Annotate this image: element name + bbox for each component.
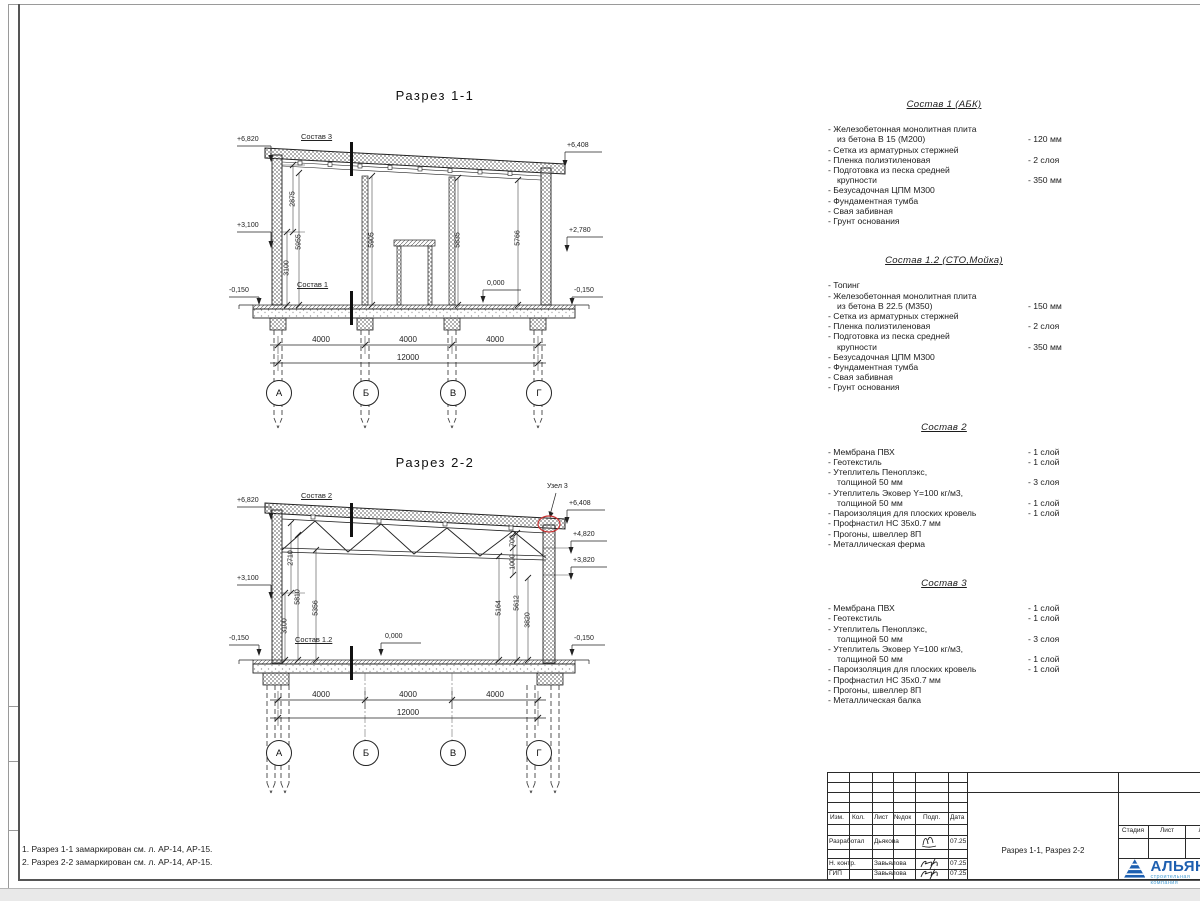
spec-item: - Профнастил НС 35х0.7 мм <box>828 675 1090 685</box>
spec-item: - Металлическая балка <box>828 695 1090 705</box>
section-view-2-2: Разрез 2-2 <box>225 445 645 805</box>
spec-item: - Грунт основания <box>828 382 1090 392</box>
desk-background <box>0 888 1200 901</box>
tb-col-podp: Подп. <box>923 814 940 821</box>
vertical-dim: 5810 <box>295 589 302 605</box>
elevation-label: +4,820 <box>573 531 595 538</box>
elevation-label: +2,780 <box>569 227 591 234</box>
spec-block-sostav-3: Состав 3 - Мембрана ПВХ - 1 слой - Геоте… <box>828 579 1090 705</box>
spec-item: - Железобетонная монолитная плитаиз бето… <box>828 291 1090 311</box>
drawing-sheet: { "s11": { "title": "Разрез 1-1", "cut_l… <box>0 0 1200 900</box>
tb-date: 07.25 <box>950 860 966 867</box>
span-dim: 4000 <box>312 690 330 699</box>
tb-col-ndok: №док <box>894 814 911 821</box>
vertical-dim: 3820 <box>525 612 532 628</box>
tb-col-list: Лист <box>874 814 888 821</box>
margin-tick-1 <box>8 706 18 707</box>
spec-title: Состав 3 <box>828 579 1060 589</box>
vertical-dim: 3100 <box>284 260 291 276</box>
spec-block-sostav-2: Состав 2 - Мембрана ПВХ - 1 слой - Геоте… <box>828 423 1090 549</box>
elevation-label: +3,820 <box>573 557 595 564</box>
sheet-notes: 1. Разрез 1-1 замаркирован см. л. АР-14,… <box>22 843 212 869</box>
spec-item: - Утеплитель Пеноплэкс,толщиной 50 мм - … <box>828 624 1090 644</box>
spec-item: - Профнастил НС 35х0.7 мм <box>828 518 1090 528</box>
axis-bubble: Б <box>353 380 379 406</box>
sheet-border-left-outer <box>8 4 9 888</box>
elevation-label: -0,150 <box>574 635 594 642</box>
axis-bubble: Б <box>353 740 379 766</box>
tb-role: ГИП <box>829 870 842 877</box>
composition-cut-label: Состав 1 <box>297 280 328 289</box>
spec-item: - Утеплитель Эковер Y=100 кг/м3,толщиной… <box>828 488 1090 508</box>
axis-bubble: Г <box>526 740 552 766</box>
spec-title: Состав 2 <box>828 423 1060 433</box>
spec-item: - Пароизоляция для плоских кровель - 1 с… <box>828 508 1090 518</box>
spec-item-list: - Железобетонная монолитная плитаиз бето… <box>828 124 1090 226</box>
spec-item: - Мембрана ПВХ - 1 слой <box>828 603 1090 613</box>
vertical-dim: 5905 <box>369 232 376 248</box>
composition-cut-label: Состав 1.2 <box>295 635 332 644</box>
tb-stage-col: Лист <box>1160 827 1174 834</box>
span-dim: 4000 <box>486 690 504 699</box>
tb-doc-title: Разрез 1-1, Разрез 2-2 <box>968 846 1118 855</box>
spec-item: - Сетка из арматурных стержней <box>828 145 1090 155</box>
tb-role: Разработал <box>829 838 864 845</box>
node-callout-label: Узел 3 <box>547 483 568 490</box>
spec-item: - Прогоны, швеллер 8П <box>828 529 1090 539</box>
section-view-1-1: Разрез 1-1 <box>225 80 645 440</box>
vertical-dim: 5835 <box>455 232 462 248</box>
tb-col-kol: Кол. <box>852 814 865 821</box>
spec-item: - Фундаментная тумба <box>828 362 1090 372</box>
span-dim: 4000 <box>486 335 504 344</box>
spec-item: - Пароизоляция для плоских кровель - 1 с… <box>828 664 1090 674</box>
axis-bubble: В <box>440 380 466 406</box>
note-line: 2. Разрез 2-2 замаркирован см. л. АР-14,… <box>22 856 212 869</box>
spec-item: - Свая забивная <box>828 372 1090 382</box>
note-line: 1. Разрез 1-1 замаркирован см. л. АР-14,… <box>22 843 212 856</box>
spec-item: - Утеплитель Эковер Y=100 кг/м3,толщиной… <box>828 644 1090 664</box>
spec-item: - Безусадочная ЦПМ М300 <box>828 352 1090 362</box>
elevation-label: +6,408 <box>569 500 591 507</box>
spec-item: - Железобетонная монолитная плитаиз бето… <box>828 124 1090 144</box>
spec-item: - Грунт основания <box>828 216 1090 226</box>
vertical-dim: 3100 <box>282 618 289 634</box>
tb-stage-col: Стадия <box>1122 827 1144 834</box>
composition-specs: Состав 1 (АБК) - Железобетонная монолитн… <box>828 100 1090 705</box>
sheet-border-top <box>8 4 1200 5</box>
spec-item: - Мембрана ПВХ - 1 слой <box>828 447 1090 457</box>
vertical-dim: 2875 <box>290 191 297 207</box>
spec-item: - Сетка из арматурных стержней <box>828 311 1090 321</box>
elevation-label: +3,100 <box>237 575 259 582</box>
logo-triangle-icon <box>1124 859 1145 878</box>
span-dim: 4000 <box>399 690 417 699</box>
tb-date: 07.25 <box>950 838 966 845</box>
spec-item-list: - Топинг - Железобетонная монолитная пли… <box>828 280 1090 392</box>
spec-block-sostav-1-2: Состав 1.2 (СТО,Мойка) - Топинг - Железо… <box>828 256 1090 392</box>
elevation-label: -0,150 <box>574 287 594 294</box>
elevation-label: +3,100 <box>237 222 259 229</box>
spec-item: - Подготовка из песка среднейкрупности -… <box>828 165 1090 185</box>
title-block: Изм. Кол. Лист №док Подп. Дата Разработа… <box>827 772 1200 880</box>
spec-item: - Утеплитель Пеноплэкс,толщиной 50 мм - … <box>828 467 1090 487</box>
spec-item-list: - Мембрана ПВХ - 1 слой - Геотекстиль - … <box>828 447 1090 549</box>
tb-date: 07.25 <box>950 870 966 877</box>
vertical-dim: 2710 <box>288 550 295 566</box>
composition-cut-label: Состав 3 <box>301 132 332 141</box>
spec-block-sostav-1: Состав 1 (АБК) - Железобетонная монолитн… <box>828 100 1090 226</box>
spec-item: - Свая забивная <box>828 206 1090 216</box>
span-dim: 4000 <box>399 335 417 344</box>
signature-razrabotal <box>919 834 947 848</box>
spec-item-list: - Мембрана ПВХ - 1 слой - Геотекстиль - … <box>828 603 1090 705</box>
tb-role: Н. контр. <box>829 860 856 867</box>
elevation-label: +6,408 <box>567 142 589 149</box>
sheet-border-left-inner <box>18 4 20 881</box>
vertical-dim: 5164 <box>496 600 503 616</box>
composition-cut-label: Состав 2 <box>301 491 332 500</box>
vertical-dim: 5356 <box>313 600 320 616</box>
vertical-dim: 1000 <box>510 554 517 570</box>
axis-bubble: Г <box>526 380 552 406</box>
spec-item: - Прогоны, швеллер 8П <box>828 685 1090 695</box>
tb-col-izm: Изм. <box>830 814 844 821</box>
signature-gip <box>919 868 947 880</box>
total-dim: 12000 <box>397 353 419 362</box>
logo-tagline: строительная компания <box>1150 874 1200 886</box>
vertical-dim: 5612 <box>514 595 521 611</box>
vertical-dim: 5766 <box>515 230 522 246</box>
tb-name: Завьялова <box>874 860 906 867</box>
vertical-dim: 700 <box>510 535 517 547</box>
axis-bubble: А <box>266 740 292 766</box>
margin-tick-3 <box>8 830 18 831</box>
tb-col-data: Дата <box>950 814 964 821</box>
logo-name: АЛЬЯНС <box>1150 859 1200 874</box>
tb-name: Завьялова <box>874 870 906 877</box>
elevation-label: -0,150 <box>229 287 249 294</box>
spec-title: Состав 1.2 (СТО,Мойка) <box>828 256 1060 266</box>
tb-name: Дьякова <box>874 838 899 845</box>
spec-item: - Пленка полиэтиленовая - 2 слоя <box>828 321 1090 331</box>
total-dim: 12000 <box>397 708 419 717</box>
elevation-label: 0,000 <box>487 280 505 287</box>
company-logo: АЛЬЯНС строительная компания <box>1124 859 1200 886</box>
vertical-dim: 5955 <box>296 234 303 250</box>
spec-item: - Геотекстиль - 1 слой <box>828 613 1090 623</box>
spec-title: Состав 1 (АБК) <box>828 100 1060 110</box>
spec-item: - Подготовка из песка среднейкрупности -… <box>828 331 1090 351</box>
spec-item: - Металлическая ферма <box>828 539 1090 549</box>
axis-bubble: А <box>266 380 292 406</box>
spec-item: - Безусадочная ЦПМ М300 <box>828 185 1090 195</box>
elevation-label: +6,820 <box>237 136 259 143</box>
span-dim: 4000 <box>312 335 330 344</box>
axis-bubble: В <box>440 740 466 766</box>
elevation-label: -0,150 <box>229 635 249 642</box>
elevation-label: +6,820 <box>237 497 259 504</box>
margin-tick-2 <box>8 761 18 762</box>
spec-item: - Пленка полиэтиленовая - 2 слоя <box>828 155 1090 165</box>
elevation-label: 0,000 <box>385 633 403 640</box>
spec-item: - Геотекстиль - 1 слой <box>828 457 1090 467</box>
spec-item: - Фундаментная тумба <box>828 196 1090 206</box>
spec-item: - Топинг <box>828 280 1090 290</box>
